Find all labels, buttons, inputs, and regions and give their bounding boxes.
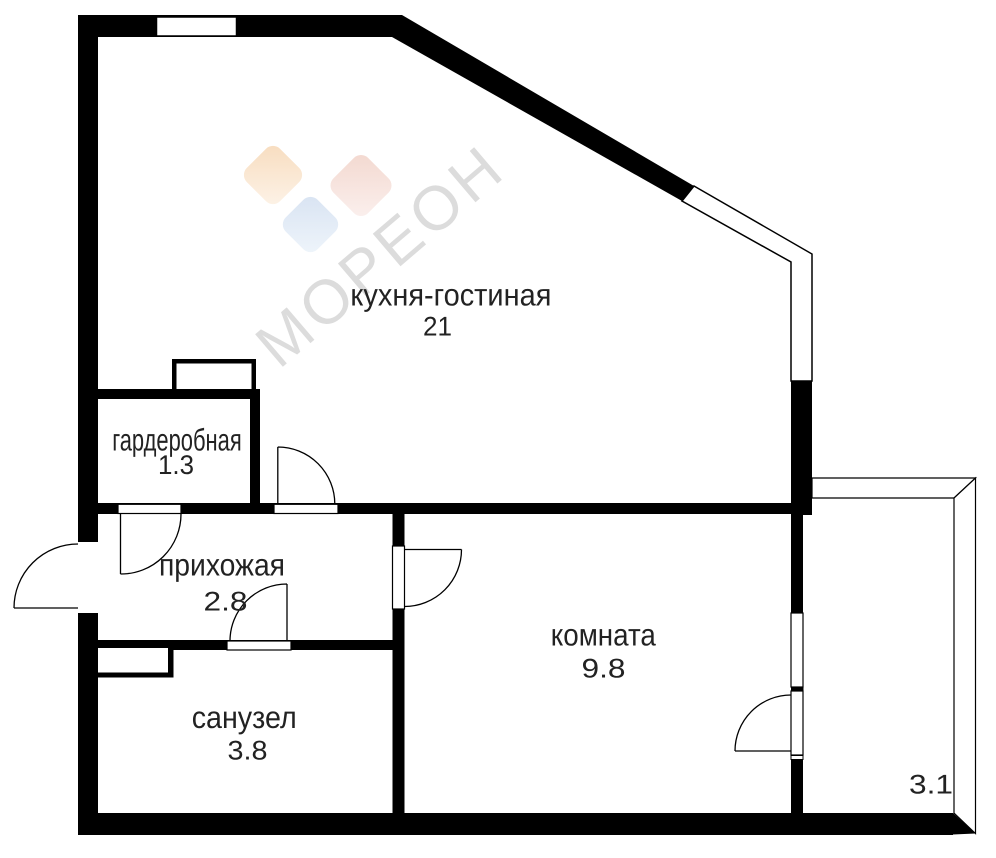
svg-text:9.8: 9.8	[582, 653, 626, 683]
svg-text:1.3: 1.3	[158, 450, 194, 480]
svg-text:2.8: 2.8	[204, 587, 248, 617]
svg-text:21: 21	[423, 312, 452, 342]
svg-text:3.1: 3.1	[909, 770, 953, 800]
svg-text:3.8: 3.8	[228, 736, 268, 766]
svg-text:санузел: санузел	[192, 700, 297, 735]
svg-text:комната: комната	[551, 617, 657, 652]
svg-text:кухня-гостиная: кухня-гостиная	[350, 278, 551, 313]
svg-text:прихожая: прихожая	[159, 547, 285, 582]
